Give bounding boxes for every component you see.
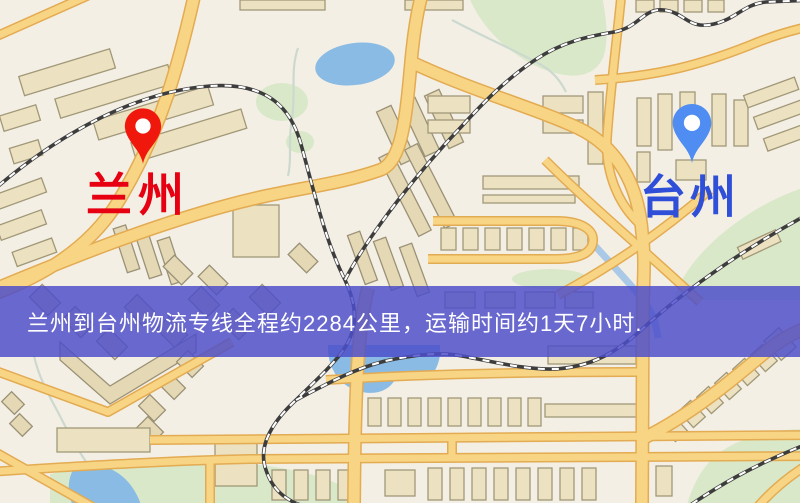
marker-pin-lanzhou[interactable]	[122, 104, 164, 170]
map-canvas[interactable]: 兰州 台州 兰州到台州物流专线全程约2284公里，运输时间约1天7小时.	[0, 0, 800, 503]
city-label-lanzhou: 兰州	[86, 172, 190, 218]
route-info-banner: 兰州到台州物流专线全程约2284公里，运输时间约1天7小时.	[0, 286, 800, 357]
route-info-text: 兰州到台州物流专线全程约2284公里，运输时间约1天7小时.	[27, 306, 643, 338]
red-pin-icon	[122, 104, 164, 170]
marker-pin-taizhou[interactable]	[668, 102, 716, 167]
map-tiles	[0, 0, 800, 503]
city-label-taizhou: 台州	[640, 174, 740, 220]
blue-pin-icon	[668, 102, 716, 167]
